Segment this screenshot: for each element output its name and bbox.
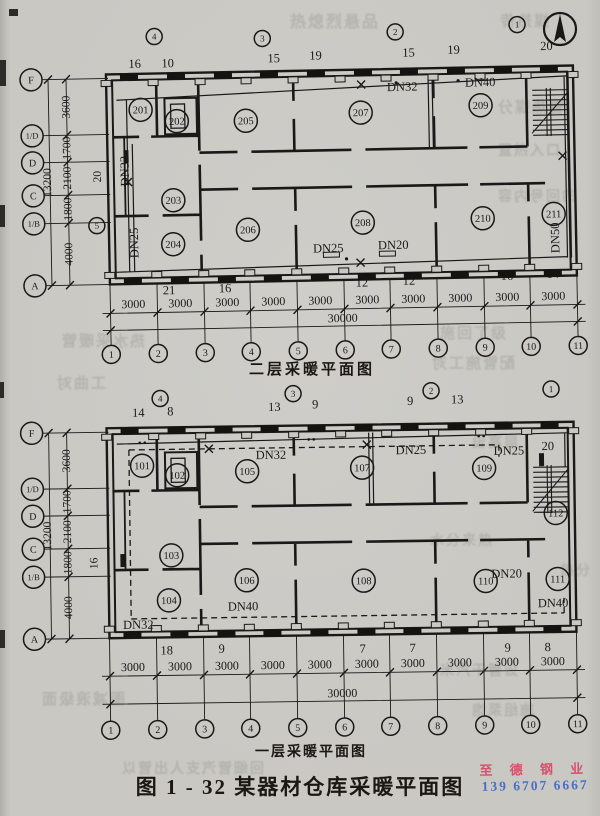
bay-dim-label: 3000 — [401, 291, 425, 305]
radiator-count: 18 — [160, 643, 173, 657]
grid-row-bubble-label: F — [29, 429, 35, 440]
radiator-count: 10 — [161, 56, 174, 70]
pipe-dn-label: 20 — [542, 439, 555, 453]
grid-col-bubble-label: 8 — [435, 721, 440, 732]
room-number-label: 103 — [163, 551, 179, 562]
floor-plan-drawing: F1/DDC1/BA360017002100180040001320054321… — [0, 0, 600, 816]
grid-col-bubble-label: 1 — [108, 726, 113, 737]
riser-bubble-label: 1 — [549, 384, 554, 394]
grid-row-bubble-label: A — [31, 635, 39, 646]
pipe-dn-label: DN40 — [465, 75, 496, 90]
pier-mark — [102, 434, 112, 440]
pier-mark — [335, 76, 345, 82]
bay-dim-label: 3000 — [121, 297, 145, 311]
window-radiator-mark — [215, 426, 233, 433]
room-number-label: 207 — [353, 108, 369, 119]
plan1-caption: 一层采暖平面图 — [226, 741, 396, 761]
room-number-label: 211 — [546, 209, 562, 220]
grid-row-bubble-label: C — [30, 545, 37, 556]
window-radiator-mark — [171, 276, 189, 283]
pier-mark — [476, 429, 486, 435]
left-dim-label: 1800 — [62, 551, 74, 574]
left-dim-label: 1700 — [61, 490, 73, 513]
bay-dim-label: 3000 — [215, 658, 239, 672]
pier-mark — [431, 622, 441, 628]
grid-col-bubble-label: 9 — [483, 343, 488, 354]
grid-col-bubble-label: 8 — [436, 343, 441, 354]
room-number-label: 111 — [550, 574, 565, 585]
pier-mark — [196, 433, 206, 439]
pier-mark — [148, 79, 158, 85]
window-radiator-mark — [400, 68, 418, 75]
grid-col-bubble-label: 2 — [156, 349, 161, 360]
radiator-count: 9 — [504, 641, 510, 655]
window-radiator-mark — [404, 272, 422, 279]
pier-mark — [198, 625, 208, 631]
grid-row-bubble-label: 1/B — [28, 219, 41, 229]
window-radiator-mark — [358, 273, 376, 280]
radiator-count: 7 — [359, 642, 365, 656]
left-dim-label: 2100 — [62, 520, 74, 543]
pier-mark — [385, 267, 395, 273]
grid-col-bubble-label: 11 — [573, 719, 583, 730]
grid-row-bubble-label: D — [29, 158, 36, 169]
pier-mark — [428, 74, 438, 80]
window-radiator-mark — [168, 427, 186, 434]
pier-mark — [241, 78, 251, 84]
grid-row-bubble-label: D — [29, 512, 36, 523]
riser-bubble-label: 3 — [291, 389, 296, 399]
pipe-dn-label: DN50 — [548, 222, 563, 253]
pipe-dn-label: DN25 — [396, 443, 427, 457]
window-radiator-mark — [544, 269, 562, 276]
radiator-count: 9 — [407, 394, 413, 408]
grid-col-bubble-label: 3 — [202, 724, 207, 735]
window-radiator-mark — [263, 629, 281, 636]
radiator-count: 13 — [268, 400, 281, 414]
pier-mark — [572, 263, 582, 269]
window-radiator-mark — [450, 627, 468, 634]
riser-bubble-label: 4 — [152, 32, 157, 42]
pier-mark — [339, 268, 349, 274]
left-dim-label: 1800 — [62, 197, 74, 220]
window-radiator-mark — [451, 271, 469, 278]
window-radiator-mark — [448, 423, 466, 430]
window-radiator-mark — [401, 423, 419, 430]
grid-col-bubble-label: 10 — [526, 720, 536, 731]
bay-dim-label: 3000 — [261, 658, 285, 672]
pier-mark — [292, 269, 302, 275]
radiator-count: 8 — [167, 404, 173, 418]
window-radiator-mark — [495, 422, 513, 429]
riser-bubble-label: 3 — [260, 33, 265, 43]
window-radiator-mark — [540, 65, 558, 72]
grid-col-bubble-label: 3 — [203, 348, 208, 359]
pier-mark — [101, 80, 111, 86]
radiator-count: 16 — [219, 281, 232, 295]
pier-mark — [525, 264, 535, 270]
radiator-count: 20 — [540, 39, 553, 53]
radiator-count: 15 — [267, 51, 280, 65]
radiator-count: 7 — [409, 641, 415, 655]
left-dim-label: 3600 — [60, 95, 72, 118]
pier-mark — [336, 431, 346, 437]
bay-dim-label: 3000 — [448, 290, 472, 304]
radiator-count: 19 — [309, 48, 322, 62]
bay-dim-label: 3000 — [168, 296, 192, 310]
riser-bubble-label: 2 — [429, 386, 434, 396]
room-number-label: 105 — [239, 467, 255, 478]
plan2-caption: 二层采暖平面图 — [222, 358, 402, 379]
window-radiator-mark — [260, 71, 278, 78]
grid-row-bubble-label: A — [31, 281, 39, 292]
riser-bubble-label: 4 — [158, 394, 163, 404]
pier-mark — [522, 428, 532, 434]
valve-symbols — [122, 77, 568, 271]
grid-row-bubble-label: C — [30, 191, 37, 202]
left-dim-label: 3600 — [61, 449, 73, 472]
pier-mark — [384, 622, 394, 628]
window-radiator-mark — [261, 425, 279, 432]
window-radiator-mark — [123, 631, 141, 638]
pier-mark — [429, 430, 439, 436]
window-radiator-mark — [124, 277, 142, 284]
room-number-label: 102 — [169, 471, 185, 482]
room-number-label: 209 — [473, 101, 489, 112]
radiator-count: 13 — [451, 392, 464, 406]
window-radiator-mark — [354, 69, 372, 76]
pier-mark — [291, 624, 301, 630]
grid-col-bubble-label: 1 — [109, 350, 114, 361]
window-radiator-mark — [214, 72, 232, 79]
pier-mark — [289, 432, 299, 438]
pipe-dn-label: DN20 — [491, 566, 522, 580]
room-number-label: 206 — [240, 225, 256, 236]
room-number-label: 203 — [165, 196, 181, 207]
bay-dim-label: 3000 — [261, 294, 285, 308]
grid-col-bubble-label: 7 — [388, 722, 393, 733]
radiator-count: 19 — [447, 43, 460, 57]
pipe-dn-label: DN40 — [228, 599, 259, 613]
window-radiator-mark — [403, 627, 421, 634]
valve-symbols — [205, 441, 371, 453]
left-total-dim: 13200 — [42, 521, 54, 550]
grid-col-bubble-label: 4 — [249, 347, 254, 358]
total-dim-label: 30000 — [327, 686, 357, 700]
left-dim-label: 1700 — [61, 136, 73, 159]
radiator-count: 9 — [218, 642, 224, 656]
bay-dim-label: 3000 — [495, 290, 519, 304]
radiator-count: 20 — [92, 171, 104, 183]
room-number-label: 205 — [238, 116, 254, 127]
pier-mark — [479, 265, 489, 271]
left-dim-label: 4000 — [63, 242, 75, 265]
pipe-dn-label: DN25 — [313, 241, 344, 256]
grid-col-bubble-label: 4 — [248, 724, 253, 735]
grid-col-bubble-label: 5 — [296, 346, 301, 357]
pipe-dn-label: DN32 — [123, 618, 154, 632]
window-radiator-mark — [497, 626, 515, 633]
window-radiator-mark — [218, 276, 236, 283]
grid-col-bubble-label: 10 — [526, 342, 536, 353]
bay-dim-label: 3000 — [541, 654, 565, 668]
window-radiator-mark — [121, 427, 139, 434]
radiator-count: 16 — [128, 57, 141, 71]
radiator-count: 9 — [312, 397, 318, 411]
pier-mark — [288, 77, 298, 83]
watermark-phone: 139 6707 6667 — [472, 777, 598, 796]
window-radiator-mark — [311, 274, 329, 281]
window-radiator-mark — [355, 424, 373, 431]
pier-mark — [478, 621, 488, 627]
figure-caption: 图 1 - 32 某器材仓库采暖平面图 — [130, 771, 470, 801]
window-radiator-mark — [308, 425, 326, 432]
pier-mark — [571, 620, 581, 626]
pipe-dn-label: DN32 — [387, 79, 418, 94]
radiator-count: 15 — [402, 46, 415, 60]
pier-mark — [195, 79, 205, 85]
pier-mark — [338, 623, 348, 629]
pipe-dn-label: DN25 — [494, 443, 525, 457]
pier-mark — [568, 71, 578, 77]
pier-mark — [524, 620, 534, 626]
grid-row-bubble-label: F — [28, 75, 34, 86]
pipe-dn-label: DN25 — [127, 228, 142, 259]
window-radiator-mark — [357, 628, 375, 635]
pier-mark — [149, 434, 159, 440]
window-radiator-mark — [447, 67, 465, 74]
radiator-count: 16 — [88, 557, 100, 569]
grid-row-bubble-label: 1/B — [27, 572, 40, 582]
window-radiator-mark — [170, 631, 188, 638]
grid-col-bubble-label: 9 — [482, 720, 487, 731]
room-number-label: 210 — [475, 214, 491, 225]
grid-col-bubble-label: 2 — [155, 725, 160, 736]
radiator-count: 14 — [132, 406, 145, 420]
window-radiator-mark — [264, 275, 282, 282]
total-dim-label: 30000 — [328, 311, 358, 326]
pier-mark — [242, 432, 252, 438]
bay-dim-label: 3000 — [168, 659, 192, 673]
window-radiator-mark — [543, 625, 561, 632]
bay-dim-label: 3000 — [215, 295, 239, 309]
pier-mark — [104, 626, 114, 632]
grid-row-bubble-label: 1/D — [26, 484, 39, 494]
room-number-label: 108 — [356, 576, 372, 587]
grid-col-bubble-label: 6 — [343, 345, 348, 356]
bay-dim-label: 3000 — [355, 656, 379, 670]
room-number-label: 101 — [134, 461, 150, 472]
room-number-label: 204 — [165, 240, 182, 251]
window-radiator-mark — [310, 629, 328, 636]
scanned-textbook-page: { "page": { "figure_caption": "图 1 - 32 … — [0, 0, 600, 816]
second-floor-labels: F1/DDC1/BA360017002100180040001320054321… — [19, 15, 587, 365]
riser-bubble-label: 1 — [515, 20, 520, 30]
bay-dim-label: 3000 — [308, 657, 332, 671]
left-dim-label: 4000 — [63, 596, 75, 619]
room-number-label: 106 — [239, 576, 255, 587]
window-radiator-mark — [307, 70, 325, 77]
bay-dim-label: 3000 — [401, 656, 425, 670]
radiator-count: 8 — [544, 640, 550, 654]
bay-dim-label: 3000 — [121, 660, 145, 674]
window-radiator-mark — [498, 270, 516, 277]
window-radiator-mark — [217, 630, 235, 637]
window-radiator-mark — [167, 72, 185, 79]
room-number-label: 109 — [476, 463, 492, 474]
grid-row-bubble-label: 1/D — [26, 131, 39, 141]
bay-dim-label: 3000 — [355, 292, 379, 306]
bay-dim-label: 3000 — [495, 655, 519, 669]
grid-col-bubble-label: 7 — [389, 344, 394, 355]
pier-mark — [382, 430, 392, 436]
window-radiator-mark — [541, 421, 559, 428]
pier-mark — [569, 428, 579, 434]
window-radiator-mark — [120, 73, 138, 80]
pipe-dn-label: DN32 — [256, 448, 287, 462]
pipe-dn-label: DN20 — [378, 238, 409, 253]
room-number-label: 208 — [355, 218, 371, 229]
pier-mark — [244, 624, 254, 630]
return-pipe-dashed — [129, 444, 564, 619]
bay-dim-label: 3000 — [308, 293, 332, 307]
bay-dim-label: 3000 — [541, 289, 565, 303]
left-dim-label: 2100 — [62, 166, 74, 189]
grid-col-bubble-label: 11 — [573, 341, 583, 352]
pier-mark — [105, 272, 115, 278]
pier-mark — [245, 270, 255, 276]
riser-bubble-label: 2 — [393, 27, 398, 37]
riser-bubble-label: 5 — [94, 221, 99, 231]
room-number-label: 104 — [161, 596, 178, 607]
pier-mark — [152, 271, 162, 277]
room-number-label: 202 — [169, 117, 185, 128]
pier-mark — [199, 271, 209, 277]
room-number-label: 112 — [548, 508, 564, 519]
pipe-dn-label: DN32 — [117, 156, 132, 187]
pier-mark — [521, 72, 531, 78]
pipe-dn-label: DN40 — [538, 596, 569, 610]
window-radiator-mark — [494, 66, 512, 73]
grid-col-bubble-label: 5 — [295, 723, 300, 734]
bay-dim-label: 3000 — [448, 655, 472, 669]
supplier-watermark: 至 德 钢 业 139 6707 6667 — [472, 761, 599, 796]
left-total-dim: 13200 — [42, 168, 55, 197]
pier-mark — [432, 266, 442, 272]
grid-col-bubble-label: 6 — [342, 722, 347, 733]
room-number-label: 107 — [354, 463, 370, 474]
room-number-label: 201 — [133, 105, 149, 116]
